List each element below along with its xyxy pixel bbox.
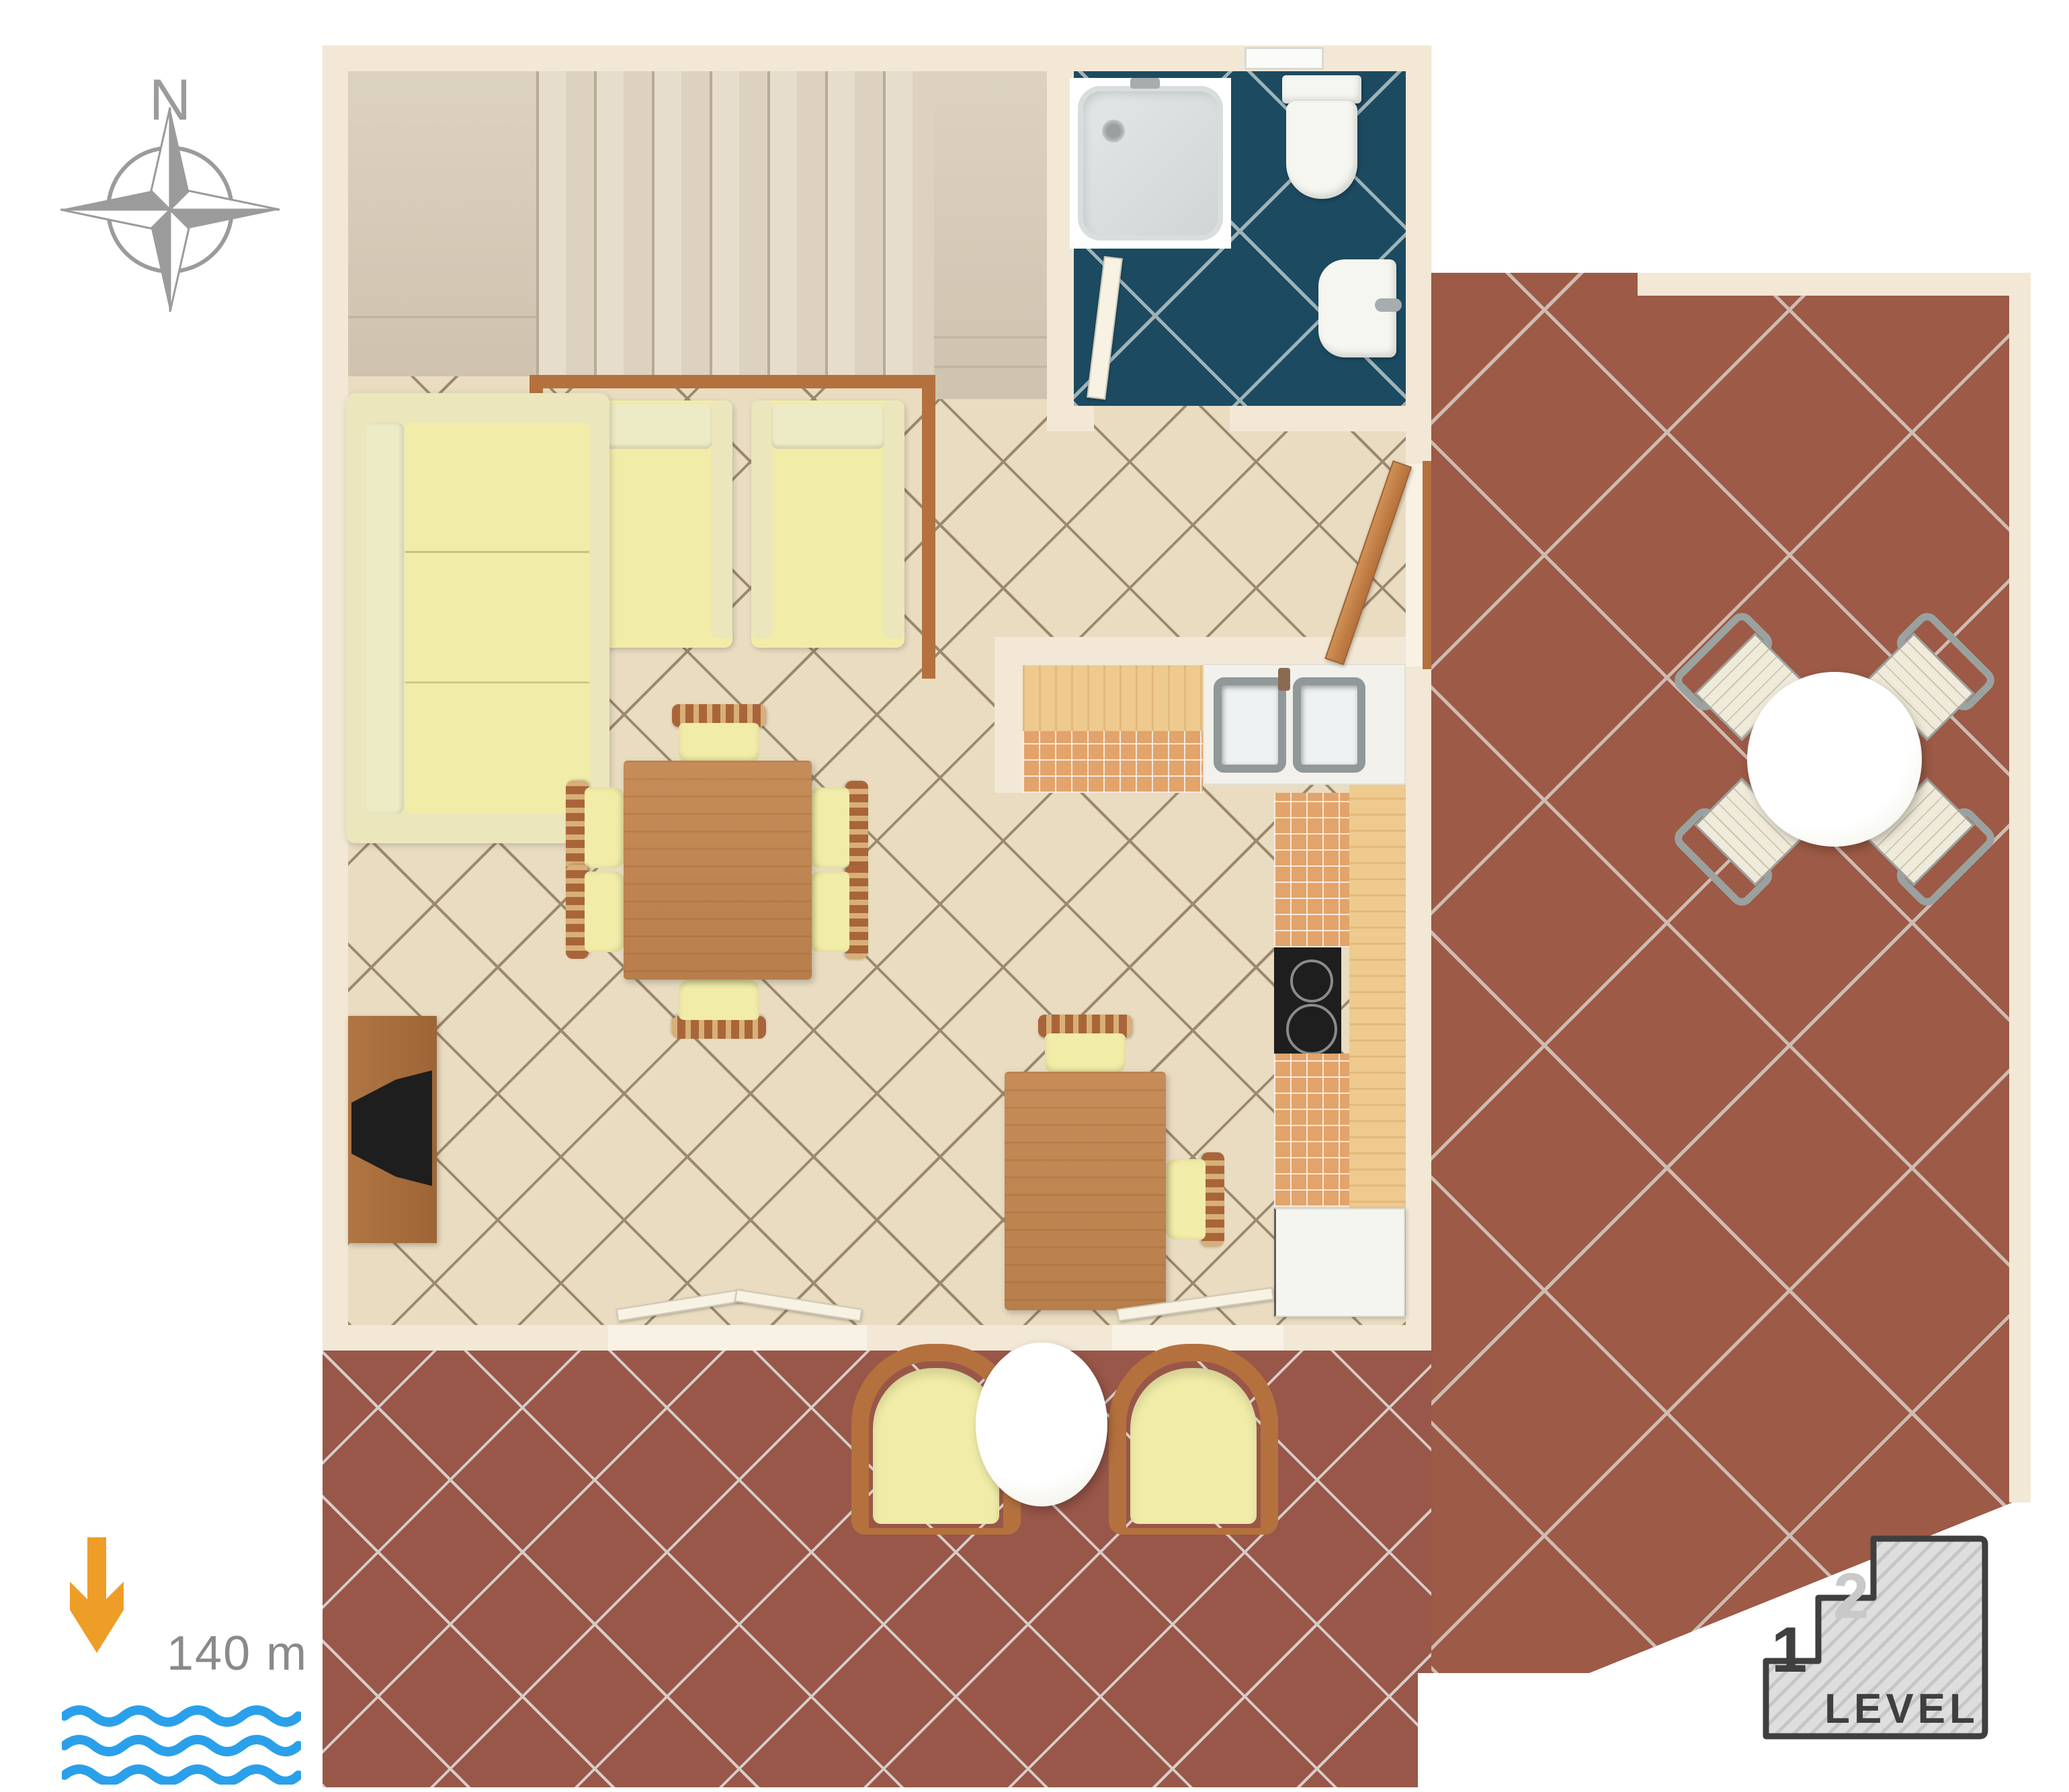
armchair-back-cushion xyxy=(771,404,884,449)
kitchen-backsplash xyxy=(1274,793,1349,947)
entry-opening-sill xyxy=(608,1325,867,1351)
fridge xyxy=(1274,1208,1405,1317)
staircase-upper-landing xyxy=(934,71,1047,399)
bidet-faucet-icon xyxy=(1375,298,1402,312)
level-1-label: 1 xyxy=(1771,1614,1807,1686)
compass-arm xyxy=(60,210,170,228)
desk-chair xyxy=(1038,1015,1132,1074)
dining-table xyxy=(624,761,812,980)
chair-seat xyxy=(809,871,849,952)
armrest xyxy=(711,400,732,638)
sea-distance-label: 140 m xyxy=(167,1626,308,1681)
chair-seat xyxy=(585,871,625,952)
dining-chair xyxy=(809,781,868,875)
faucet-icon xyxy=(1278,668,1290,691)
wicker-cushion xyxy=(1130,1368,1257,1524)
chair-seat xyxy=(809,787,849,868)
kitchen-wall-stub xyxy=(995,637,1023,793)
level-label: LEVEL xyxy=(1824,1686,1979,1732)
chair-seat xyxy=(679,723,759,763)
patio-round-table xyxy=(1747,672,1922,847)
toilet-tank xyxy=(1282,75,1361,103)
chair-seat xyxy=(585,787,625,868)
bathroom-left-wall xyxy=(1047,71,1074,431)
sofa-seat-cushions xyxy=(405,423,589,814)
bathroom-bottom-wall xyxy=(1230,406,1406,431)
step-edge-line xyxy=(348,316,536,318)
armrest xyxy=(883,400,904,638)
dining-chair xyxy=(566,865,625,959)
sea-waves-icon xyxy=(62,1703,301,1785)
kitchen-backsplash xyxy=(1023,731,1203,793)
terrace-door-frame xyxy=(1423,461,1431,669)
terrace-right-wall xyxy=(2009,273,2031,1502)
dining-chair xyxy=(672,980,766,1039)
chair-seat xyxy=(679,980,759,1020)
cooktop xyxy=(1274,947,1341,1054)
desk-table xyxy=(1005,1072,1166,1310)
step-edge-line xyxy=(934,366,1047,368)
compass-arm xyxy=(170,191,280,210)
staircase-treads xyxy=(536,71,934,376)
burner-icon xyxy=(1290,959,1333,1002)
alcove-armchair xyxy=(751,400,904,648)
armchair-back-cushion xyxy=(599,404,712,449)
staircase-landing xyxy=(348,71,536,376)
shower-tray xyxy=(1072,81,1228,246)
bathroom-bottom-wall xyxy=(1074,406,1094,431)
terrace-round-table xyxy=(976,1342,1107,1506)
kitchen-backsplash xyxy=(1274,1054,1349,1207)
step-edge-line xyxy=(934,336,1047,339)
shower-faucet-icon xyxy=(1130,78,1160,89)
desk-chair xyxy=(1165,1152,1224,1246)
bathroom-window xyxy=(1244,47,1324,70)
down-arrow-icon xyxy=(62,1537,132,1660)
armrest xyxy=(751,400,773,638)
dining-chair xyxy=(672,704,766,763)
stairs-level-icon: 2 1 LEVEL xyxy=(1753,1531,1997,1747)
wicker-armchair xyxy=(1109,1344,1278,1535)
sofa xyxy=(346,393,609,843)
sink-basin xyxy=(1293,677,1365,773)
burner-icon xyxy=(1286,1004,1337,1055)
toilet-bowl xyxy=(1286,101,1357,199)
terrace-top-wall xyxy=(1638,273,2031,296)
compass-arm xyxy=(60,191,170,210)
sofa-backrest xyxy=(366,423,404,814)
dining-chair xyxy=(566,781,625,875)
dining-chair xyxy=(809,865,868,959)
shower-basin xyxy=(1078,86,1223,241)
kitchen-counter xyxy=(1023,665,1203,731)
chair-seat xyxy=(1165,1159,1206,1240)
floor-plan-canvas: N 140 m 2 1 LEVEL xyxy=(0,0,2069,1792)
sink-basin xyxy=(1214,677,1286,773)
shower-drain-icon xyxy=(1102,120,1125,142)
compass-rose-icon: N xyxy=(60,40,282,343)
level-2-label: 2 xyxy=(1833,1560,1869,1632)
compass-arm xyxy=(170,210,189,312)
chair-seat xyxy=(1045,1033,1126,1074)
